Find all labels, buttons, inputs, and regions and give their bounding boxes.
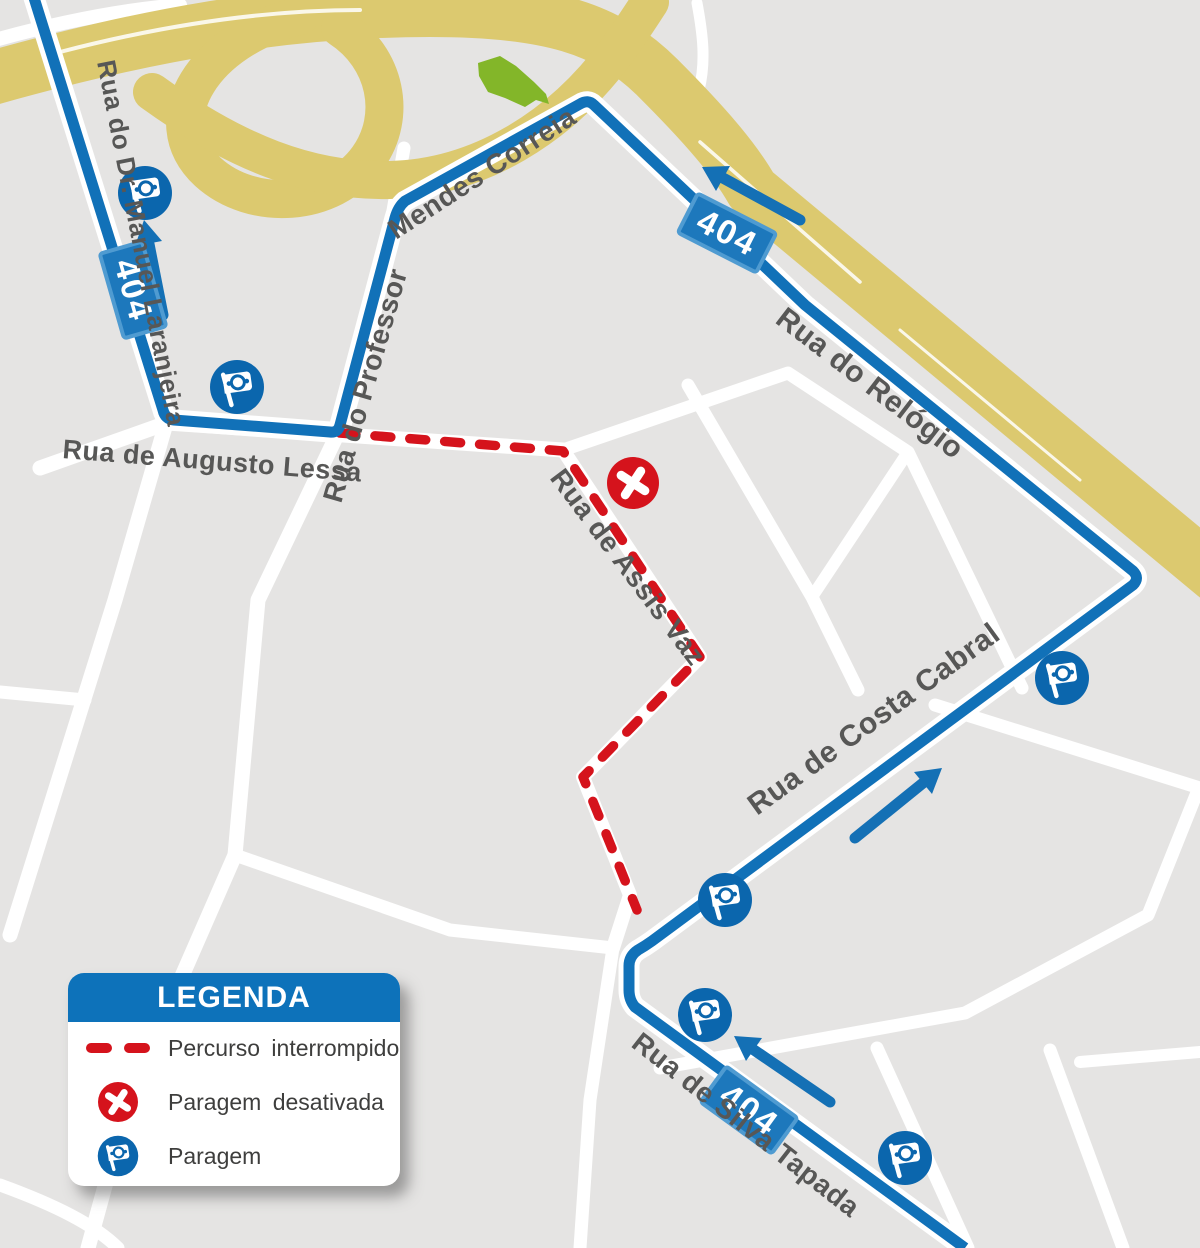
- disabled-stop-icon: [68, 1081, 168, 1123]
- legend-item-stop: Paragem: [68, 1136, 400, 1176]
- bus-stop-icon: [210, 360, 264, 414]
- bus-stop-icon: [698, 873, 752, 927]
- legend-box: LEGENDA Percurso interrompido: [68, 973, 400, 1186]
- legend-item-interrupted-route: Percurso interrompido: [68, 1028, 400, 1068]
- bus-stop-icon: [678, 988, 732, 1042]
- dashed-line-icon: [68, 1041, 168, 1055]
- bus-stop-icon: [68, 1135, 168, 1177]
- bus-stop-icon: [878, 1131, 932, 1185]
- bus-stop-icon: [1035, 651, 1089, 705]
- legend-item-label: Paragem desativada: [168, 1089, 384, 1116]
- detour-map-page: 404 404 404: [0, 0, 1200, 1248]
- legend-item-label: Paragem: [168, 1143, 261, 1170]
- disabled-stop-icon: [607, 457, 659, 509]
- legend-title: LEGENDA: [68, 973, 400, 1022]
- legend-item-disabled-stop: Paragem desativada: [68, 1082, 400, 1122]
- legend-body: Percurso interrompido Paragem desativada: [68, 1022, 400, 1186]
- legend-item-label: Percurso interrompido: [168, 1035, 399, 1062]
